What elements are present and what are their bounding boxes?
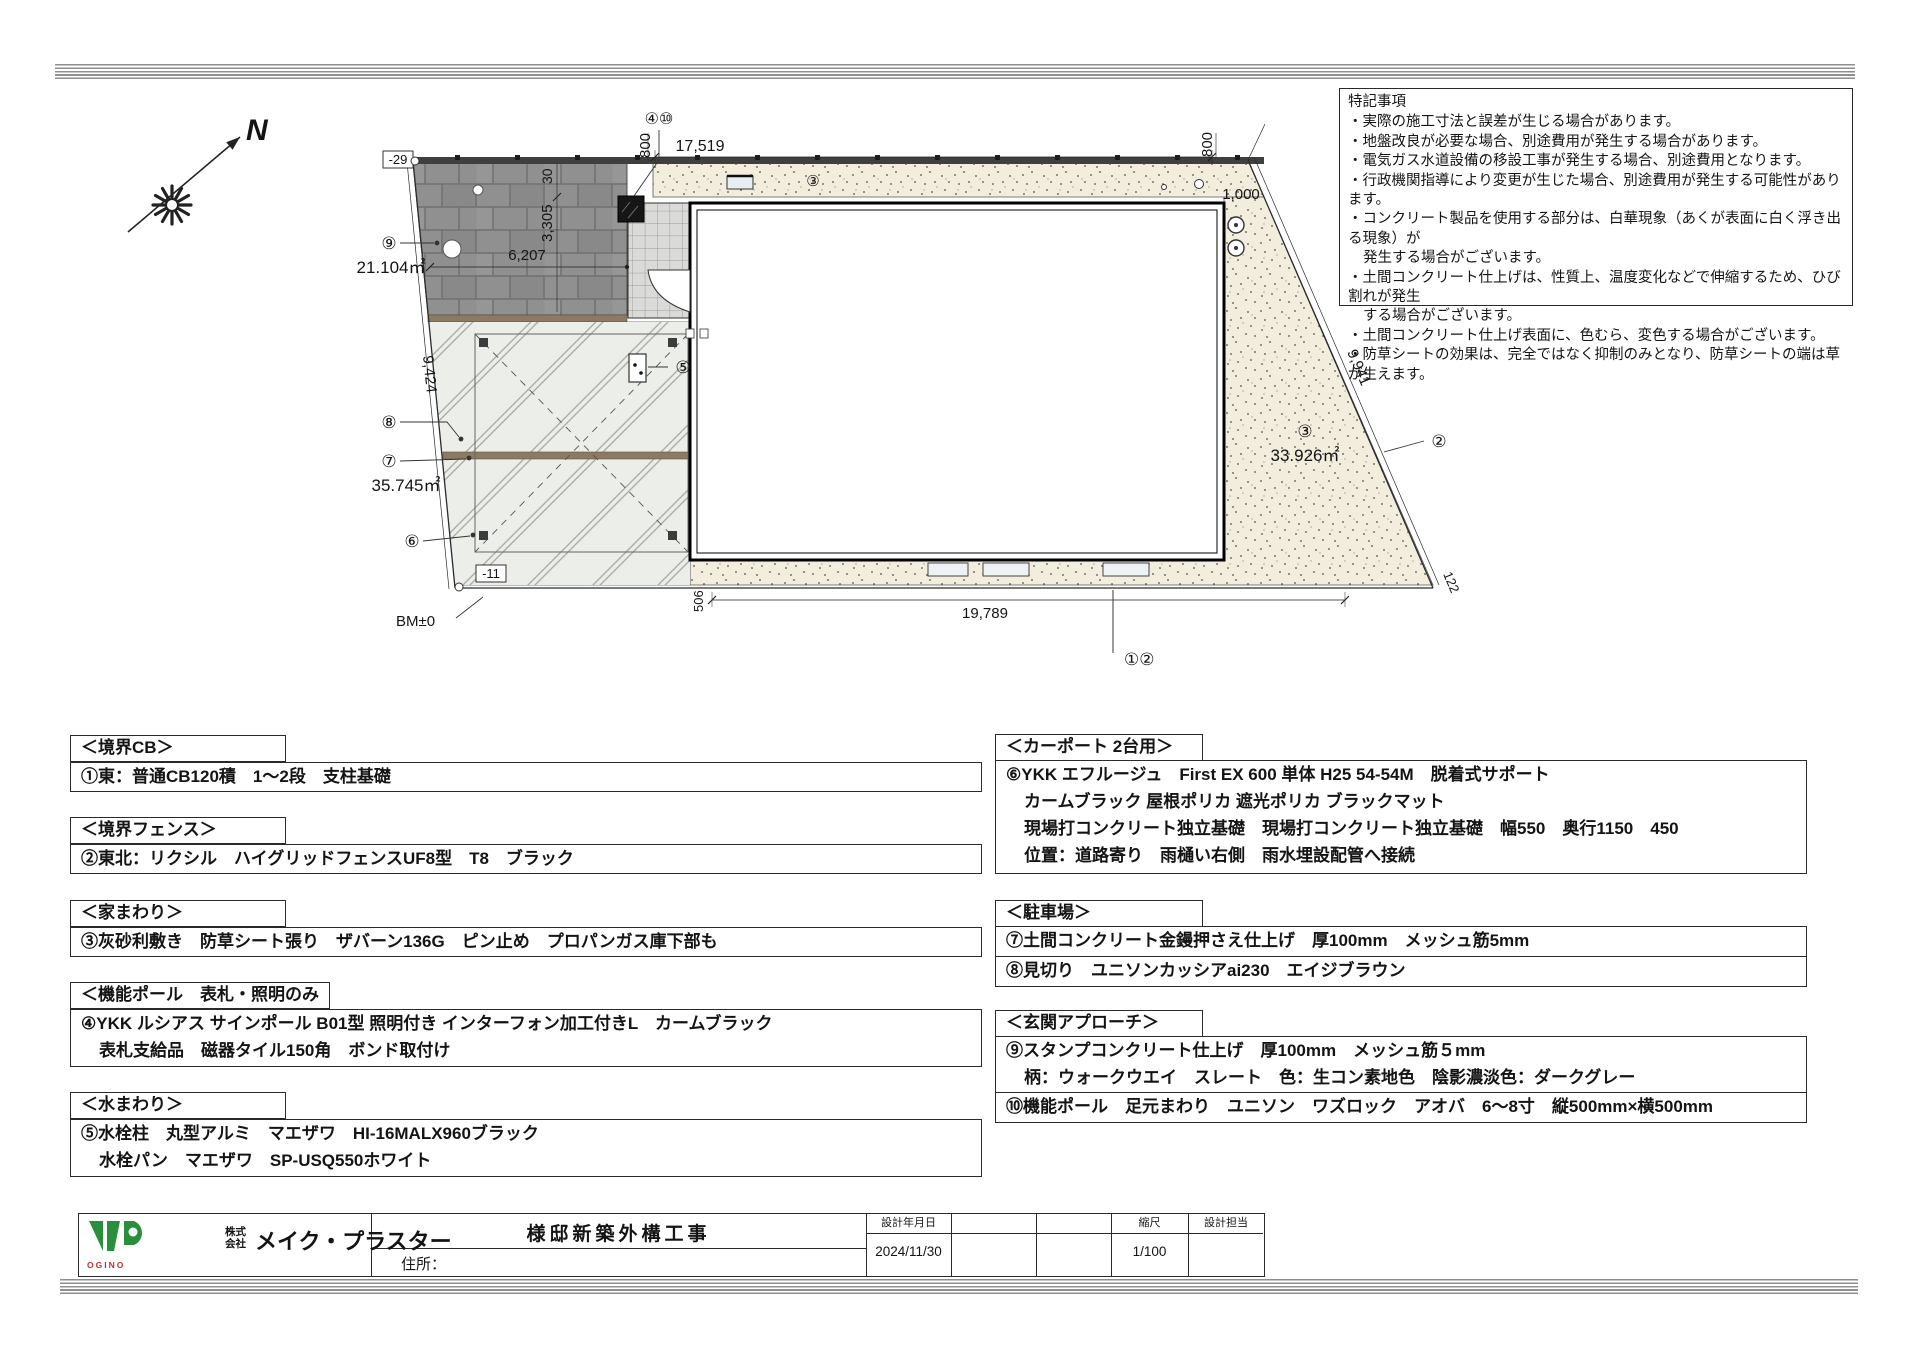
bm-label: BM±0 [396, 613, 435, 630]
water-tap [629, 354, 646, 382]
date-header: 設計年月日 [866, 1214, 951, 1233]
dim-19789: 19,789 [962, 605, 1008, 622]
carport-post [479, 531, 488, 540]
dim-1000: 1,000 [1222, 186, 1260, 203]
spec-header-function-pole: ＜機能ポール 表札・照明のみ ＞ [70, 982, 330, 1009]
note-line: ・行政機関指導により変更が生じた場合、別途費用が発生する可能性があります。 [1348, 172, 1844, 211]
spec-header-parking: ＜駐車場＞ [995, 900, 1203, 927]
note-line: する場合がございます。 [1348, 307, 1844, 326]
spec-row: ⑨スタンプコンクリート仕上げ 厚100mm メッシュ筋５mm 柄：ウォークウエイ… [995, 1036, 1807, 1093]
dim-800-top: 800 [637, 133, 654, 158]
area-drive: 35.745㎡ [372, 476, 441, 495]
note-line: ・電気ガス水道設備の移設工事が発生する場合、別途費用となります。 [1348, 152, 1844, 171]
dim-800-right: 800 [1199, 132, 1216, 157]
house-outline [648, 203, 1224, 560]
dim-3305: 3,305 [539, 204, 556, 242]
note-line: ・実際の施工寸法と誤差が生じる場合があります。 [1348, 113, 1844, 132]
north-arrow-icon [128, 137, 240, 232]
project-title: 様邸新築外構工事 [371, 1219, 866, 1246]
spec-header-boundary-cb: ＜境界CB＞ [70, 735, 286, 762]
ref-edging: ⑧ [381, 413, 396, 432]
note-line: ・土間コンクリート仕上げ表面に、色むら、変色する場合がございます。 [1348, 327, 1844, 346]
company-prefix: 株式 会社 [225, 1227, 246, 1250]
ref-gravel-right: ③ [1297, 422, 1312, 441]
logo-sub-label: OGINO [87, 1260, 145, 1270]
dim-6207: 6,207 [508, 247, 546, 264]
scale-value: 1/100 [1111, 1244, 1188, 1259]
dim-122: 122 [1440, 569, 1462, 595]
notes-title: 特記事項 [1348, 93, 1844, 112]
spec-row: ①東：普通CB120積 1～2段 支柱基礎 [70, 762, 982, 792]
title-block: OGINO 株式 会社 メイク・プラスター 様邸新築外構工事 住所： 設計年月日… [78, 1213, 1265, 1277]
ref-fence: ② [1431, 432, 1446, 451]
scale-header: 縮尺 [1111, 1214, 1188, 1233]
spec-header-carport: ＜カーポート 2台用＞ [995, 734, 1203, 761]
note-line: ・土間コンクリート仕上げは、性質上、温度変化などで伸縮するため、ひび割れが発生 [1348, 269, 1844, 308]
spec-row: ④YKK ルシアス サインポール B01型 照明付き インターフォン加工付きL … [70, 1009, 982, 1067]
north-label: N [246, 114, 269, 147]
spec-header-water: ＜水まわり＞ [70, 1092, 286, 1119]
spec-row: ③灰砂利敷き 防草シート張り ザバーン136G ピン止め プロパンガス庫下部も [70, 927, 982, 957]
address-label: 住所： [401, 1253, 446, 1274]
note-line: 発生する場合がございます。 [1348, 249, 1844, 268]
dim-30: 30 [539, 168, 555, 184]
spec-row: ⑥YKK エフルージュ First EX 600 単体 H25 54-54M 脱… [995, 760, 1807, 874]
note-line: ・コンクリート製品を使用する部分は、白華現象（あくが表面に白く浮き出る現象）が [1348, 210, 1844, 249]
function-pole [618, 196, 644, 222]
spec-row: ⑧見切り ユニソンカッシアai230 エイジブラウン [995, 956, 1807, 987]
carport-post [479, 338, 488, 347]
ref-tap: ⑤ [675, 358, 690, 377]
stamped-concrete-area [413, 163, 627, 322]
drive-area [420, 315, 700, 595]
spec-row: ⑩機能ポール 足元まわり ユニソン ワズロック アオバ 6～8寸 縦500mm×… [995, 1092, 1807, 1123]
area-approach: 21.104㎡ [357, 258, 426, 277]
note-line: ・防草シートの効果は、完全ではなく抑制のみとなり、防草シートの端は草が生えます。 [1348, 346, 1844, 385]
company-logo: OGINO [87, 1219, 145, 1270]
spec-row: ⑦土間コンクリート金鏝押さえ仕上げ 厚100mm メッシュ筋5mm [995, 926, 1807, 957]
date-value: 2024/11/30 [866, 1244, 951, 1259]
spec-header-around-house: ＜家まわり＞ [70, 900, 286, 927]
ref-function-pole: ④⑩ [645, 111, 674, 128]
dim-17519: 17,519 [676, 138, 725, 155]
area-gravel: 33.926㎡ [1271, 446, 1340, 465]
dim-9424: 9,424 [419, 355, 440, 394]
special-notes-box: 特記事項 ・実際の施工寸法と誤差が生じる場合があります。 ・地盤改良が必要な場合… [1339, 88, 1853, 306]
spec-row: ②東北：リクシル ハイグリッドフェンスUF8型 T8 ブラック [70, 844, 982, 874]
note-line: ・地盤改良が必要な場合、別途費用が発生する場合があります。 [1348, 133, 1844, 152]
level-bottom-label: -11 [482, 566, 500, 581]
logo-mark-icon [87, 1219, 145, 1259]
drawing-sheet: N -29 -11 BM±0 17,519 19,789 6,207 800 8… [0, 0, 1920, 1358]
ref-boundary-cb-fence: ①② [1124, 650, 1154, 669]
ref-approach: ⑨ [381, 234, 396, 253]
ref-carport: ⑥ [404, 532, 419, 551]
ref-drive: ⑦ [381, 452, 396, 471]
spec-row: ⑤水栓柱 丸型アルミ マエザワ HI-16MALX960ブラック 水栓パン マエ… [70, 1119, 982, 1177]
carport-post [668, 531, 677, 540]
level-top-label: -29 [389, 152, 408, 167]
cb-wall [413, 157, 1264, 164]
ref-gravel-top: ③ [806, 173, 819, 190]
carport-post [668, 338, 677, 347]
dim-506: 506 [691, 590, 706, 612]
spec-header-boundary-fence: ＜境界フェンス＞ [70, 817, 286, 844]
spec-header-entrance-approach: ＜玄関アプローチ＞ [995, 1010, 1203, 1037]
designer-header: 設計担当 [1188, 1214, 1264, 1233]
